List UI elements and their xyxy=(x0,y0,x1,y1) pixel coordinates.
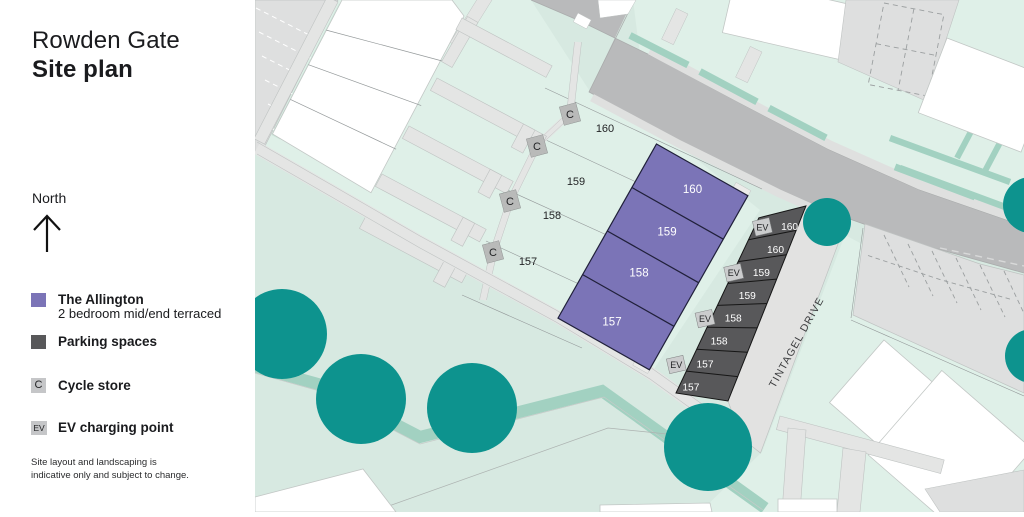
svg-text:159: 159 xyxy=(753,268,770,279)
svg-text:EV: EV xyxy=(728,268,740,278)
svg-text:158: 158 xyxy=(543,210,561,222)
svg-text:159: 159 xyxy=(567,176,585,188)
svg-text:EV: EV xyxy=(756,222,768,232)
svg-text:157: 157 xyxy=(682,382,699,393)
svg-text:C: C xyxy=(506,196,514,208)
svg-text:157: 157 xyxy=(697,360,714,371)
svg-text:157: 157 xyxy=(519,256,537,268)
svg-text:C: C xyxy=(489,247,497,259)
svg-text:158: 158 xyxy=(725,314,742,325)
svg-text:160: 160 xyxy=(683,184,702,196)
svg-text:159: 159 xyxy=(739,291,756,302)
svg-text:160: 160 xyxy=(781,222,798,233)
svg-text:C: C xyxy=(533,141,541,153)
svg-text:158: 158 xyxy=(711,337,728,348)
svg-text:EV: EV xyxy=(670,360,682,370)
svg-text:C: C xyxy=(566,109,574,121)
svg-text:159: 159 xyxy=(657,227,676,239)
svg-text:160: 160 xyxy=(596,123,614,135)
svg-text:158: 158 xyxy=(629,268,648,280)
svg-text:160: 160 xyxy=(767,245,784,256)
svg-text:157: 157 xyxy=(602,317,621,329)
svg-text:EV: EV xyxy=(699,314,711,324)
